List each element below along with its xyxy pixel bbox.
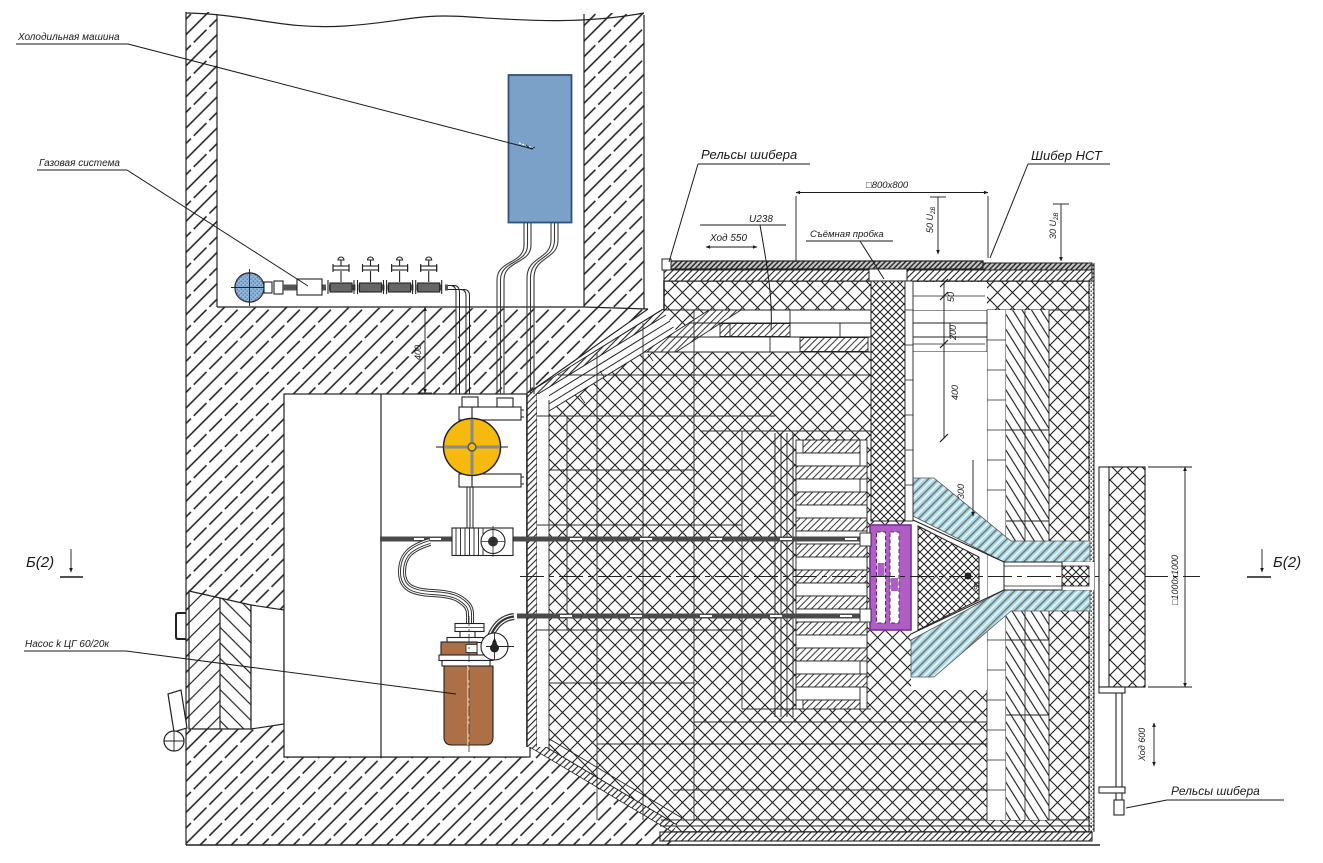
svg-text:Ход 600: Ход 600 bbox=[1137, 728, 1147, 762]
svg-text:□1000х1000: □1000х1000 bbox=[1170, 555, 1180, 605]
svg-text:Б(2): Б(2) bbox=[26, 554, 54, 571]
svg-text:Рельсы шибера: Рельсы шибера bbox=[701, 147, 797, 162]
svg-text:Насос k ЦГ 60/20к: Насос k ЦГ 60/20к bbox=[25, 639, 110, 650]
svg-text:Б(2): Б(2) bbox=[1273, 554, 1301, 571]
svg-text:Холодильная машина: Холодильная машина bbox=[17, 32, 120, 43]
svg-text:Газовая система: Газовая система bbox=[39, 158, 120, 169]
svg-text:Ход 550: Ход 550 bbox=[709, 233, 747, 244]
svg-text:30 U2В: 30 U2В bbox=[1048, 213, 1060, 239]
svg-text:50 U2В: 50 U2В bbox=[925, 207, 937, 233]
svg-text:400: 400 bbox=[950, 385, 960, 400]
svg-text:300: 300 bbox=[956, 484, 966, 499]
svg-text:90: 90 bbox=[974, 582, 981, 590]
svg-text:Рельсы шибера: Рельсы шибера bbox=[1171, 784, 1260, 798]
svg-text:50: 50 bbox=[946, 292, 956, 302]
svg-text:U238: U238 bbox=[749, 214, 773, 225]
svg-text:200: 200 bbox=[948, 325, 958, 341]
svg-text:□800х800: □800х800 bbox=[866, 180, 909, 191]
svg-text:Шибер НСТ: Шибер НСТ bbox=[1031, 148, 1103, 163]
svg-text:400: 400 bbox=[413, 345, 423, 360]
svg-text:Съёмная пробка: Съёмная пробка bbox=[810, 229, 884, 240]
